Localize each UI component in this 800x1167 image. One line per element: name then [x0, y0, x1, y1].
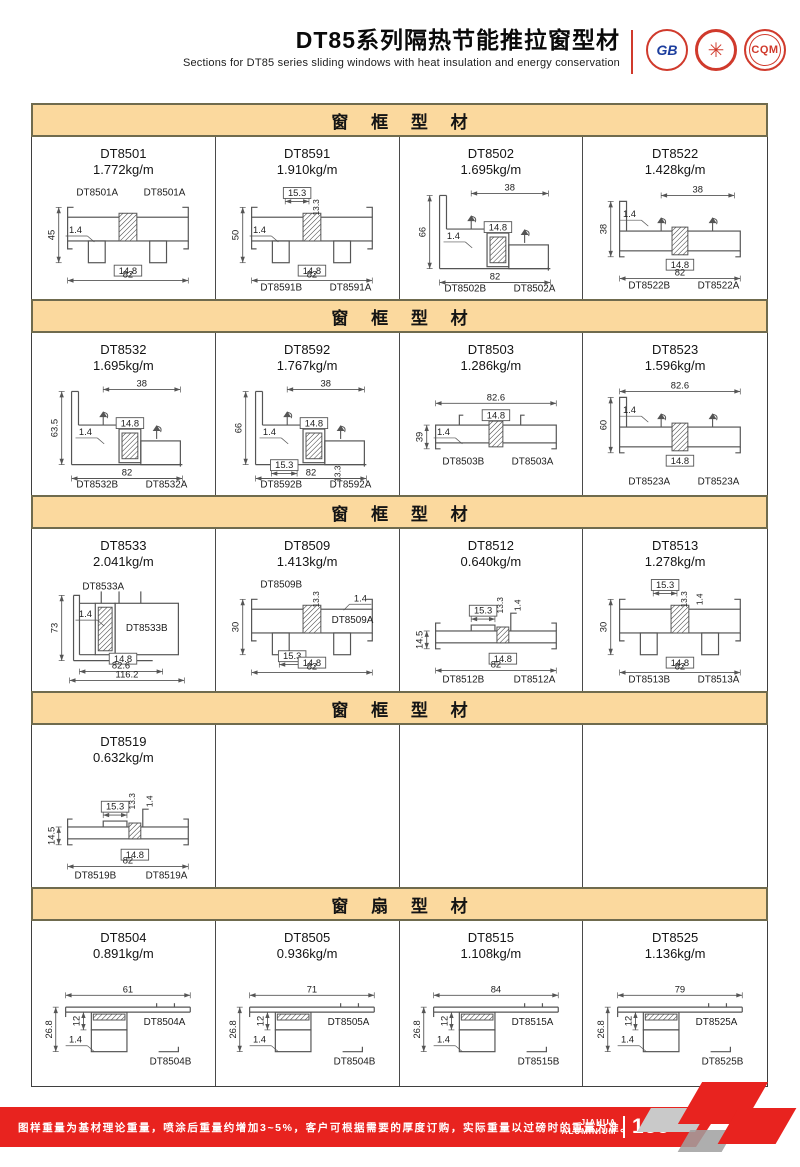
svg-text:50: 50: [230, 229, 241, 239]
profile-cell-dt8515: DT85151.108kg/m841226.81.4DT8515ADT8515B: [400, 921, 584, 1086]
svg-text:DT8532A: DT8532A: [146, 479, 188, 489]
cqm-certification-logo-icon: CQM: [744, 29, 786, 71]
svg-text:13.3: 13.3: [679, 590, 689, 607]
svg-text:1.4: 1.4: [263, 425, 276, 436]
svg-text:1.4: 1.4: [79, 608, 92, 619]
svg-text:26.8: 26.8: [43, 1020, 54, 1038]
profile-cell-dt8504: DT85040.891kg/m611226.81.4DT8504ADT8504B: [32, 921, 216, 1086]
svg-text:DT8519B: DT8519B: [75, 870, 117, 881]
svg-text:14.5: 14.5: [414, 630, 425, 648]
footer-band: 图样重量为基材理论重量，喷涂后重量约增加3~5%，客户可根据需要的厚度订购，实际…: [0, 1107, 722, 1147]
profile-section-drawing: 1.47314.882.6116.2DT8533ADT8533B: [32, 573, 214, 685]
svg-text:DT8523A: DT8523A: [629, 476, 671, 487]
profile-weight: 1.108kg/m: [461, 946, 522, 962]
svg-text:63.5: 63.5: [49, 418, 60, 436]
profile-cell-dt8512: DT85120.640kg/m15.313.31.414.514.882DT85…: [400, 529, 584, 691]
profile-weight: 1.695kg/m: [93, 358, 154, 374]
svg-text:DT8591B: DT8591B: [261, 282, 303, 293]
profile-code: DT8513: [652, 538, 698, 554]
profile-section-drawing: 3863.51.414.882DT8532BDT8532A: [32, 377, 214, 489]
svg-text:DT8591A: DT8591A: [330, 282, 372, 293]
svg-text:14.8: 14.8: [489, 221, 507, 232]
svg-text:1.4: 1.4: [69, 224, 82, 235]
svg-text:60: 60: [598, 419, 609, 429]
svg-text:71: 71: [307, 983, 317, 994]
profile-weight: 1.413kg/m: [277, 554, 338, 570]
profile-weight: 1.695kg/m: [461, 162, 522, 178]
gb-certification-logo-icon: GB: [646, 29, 688, 71]
svg-text:26.8: 26.8: [227, 1020, 238, 1038]
profile-code: DT8532: [100, 342, 146, 358]
profile-section-drawing: 841226.81.4DT8515ADT8515B: [400, 965, 582, 1077]
svg-text:DT8503B: DT8503B: [442, 456, 484, 467]
svg-text:DT8513A: DT8513A: [698, 674, 740, 685]
section-title: 窗 框 型 材: [322, 696, 476, 721]
profile-row-5: DT85040.891kg/m611226.81.4DT8504ADT8504B…: [31, 921, 768, 1087]
profile-section-drawing: 611226.81.4DT8504ADT8504B: [32, 965, 214, 1077]
svg-text:1.4: 1.4: [623, 208, 636, 219]
brand-divider: [623, 1116, 625, 1138]
svg-text:DT8533B: DT8533B: [126, 622, 168, 633]
svg-text:13.3: 13.3: [127, 792, 137, 809]
svg-text:DT8532B: DT8532B: [77, 479, 119, 489]
empty-cell: [216, 725, 400, 887]
profile-code: DT8519: [100, 734, 146, 750]
profile-section-drawing: 15.313.31.414.514.882DT8519BDT8519A: [32, 769, 214, 881]
svg-text:DT8519A: DT8519A: [146, 870, 188, 881]
profile-weight: 1.136kg/m: [645, 946, 706, 962]
profile-cell-dt8503: DT85031.286kg/m82.61.414.839DT8503BDT850…: [400, 333, 584, 495]
svg-text:66: 66: [233, 422, 244, 432]
svg-text:82: 82: [123, 268, 133, 279]
svg-text:38: 38: [321, 377, 331, 388]
profile-row-2: DT85321.695kg/m3863.51.414.882DT8532BDT8…: [31, 333, 768, 495]
svg-text:1.4: 1.4: [623, 404, 636, 415]
section-title: 窗 框 型 材: [322, 304, 476, 329]
svg-text:61: 61: [123, 983, 133, 994]
profile-cell-dt8519: DT85190.632kg/m15.313.31.414.514.882DT85…: [32, 725, 216, 887]
profile-cell-dt8532: DT85321.695kg/m3863.51.414.882DT8532BDT8…: [32, 333, 216, 495]
svg-text:1.4: 1.4: [621, 1033, 634, 1044]
seal-logo-glyph: ✳: [708, 38, 725, 63]
svg-text:12: 12: [255, 1015, 266, 1025]
catalog-page: DT85系列隔热节能推拉窗型材 Sections for DT85 series…: [0, 0, 800, 1167]
svg-text:DT8509A: DT8509A: [332, 615, 374, 626]
section-title: 窗 框 型 材: [322, 500, 476, 525]
profile-section-drawing: 791226.81.4DT8525ADT8525B: [584, 965, 766, 1077]
svg-text:1.4: 1.4: [437, 425, 450, 436]
svg-text:38: 38: [598, 223, 609, 233]
empty-cell: [583, 725, 767, 887]
svg-text:38: 38: [504, 181, 514, 192]
svg-text:13.3: 13.3: [495, 596, 505, 613]
profile-cell-dt8505: DT85050.936kg/m711226.81.4DT8505ADT8504B: [216, 921, 400, 1086]
profile-section-drawing: 82.61.46014.8DT8523ADT8523A: [584, 377, 766, 489]
svg-text:82: 82: [675, 266, 685, 277]
profile-code: DT8503: [468, 342, 514, 358]
profile-code: DT8504: [100, 930, 146, 946]
svg-text:82: 82: [307, 660, 317, 671]
svg-text:DT8592A: DT8592A: [330, 479, 372, 489]
section-title: 窗 框 型 材: [322, 108, 476, 133]
profile-weight: 1.772kg/m: [93, 162, 154, 178]
svg-text:12: 12: [71, 1015, 82, 1025]
profile-code: DT8523: [652, 342, 698, 358]
svg-text:15.3: 15.3: [106, 800, 124, 811]
svg-text:84: 84: [491, 983, 501, 994]
svg-text:13.3: 13.3: [311, 198, 321, 215]
section-band-3: 窗 框 型 材: [31, 495, 768, 529]
profile-code: DT8509: [284, 538, 330, 554]
profile-catalog: 窗 框 型 材DT85011.772kg/m451.414.882DT8501A…: [31, 103, 768, 1087]
profile-section-drawing: 451.414.882DT8501ADT8501A: [32, 181, 214, 293]
profile-code: DT8525: [652, 930, 698, 946]
svg-text:DT8522B: DT8522B: [629, 280, 671, 291]
svg-text:DT8512B: DT8512B: [442, 674, 484, 685]
section-band-4: 窗 框 型 材: [31, 691, 768, 725]
profile-weight: 0.936kg/m: [277, 946, 338, 962]
profile-cell-dt8523: DT85231.596kg/m82.61.46014.8DT8523ADT852…: [583, 333, 767, 495]
svg-text:82: 82: [123, 854, 133, 865]
svg-text:66: 66: [417, 226, 428, 236]
brand-line1: JIAHUA: [562, 1118, 617, 1127]
profile-weight: 0.891kg/m: [93, 946, 154, 962]
svg-text:1.4: 1.4: [145, 795, 155, 807]
profile-weight: 1.428kg/m: [645, 162, 706, 178]
page-title: DT85系列隔热节能推拉窗型材: [0, 26, 620, 55]
profile-code: DT8501: [100, 146, 146, 162]
profile-cell-dt8592: DT85921.767kg/m38661.414.815.313.382DT85…: [216, 333, 400, 495]
svg-text:DT8509B: DT8509B: [261, 579, 303, 590]
svg-text:82: 82: [491, 658, 501, 669]
svg-text:DT8525B: DT8525B: [702, 1056, 744, 1067]
svg-text:DT8504A: DT8504A: [144, 1016, 186, 1027]
profile-section-drawing: 15.313.31.414.514.882DT8512BDT8512A: [400, 573, 582, 685]
star-seal-logo-icon: ✳: [695, 29, 737, 71]
svg-text:39: 39: [414, 431, 425, 441]
profile-cell-dt8533: DT85332.041kg/m1.47314.882.6116.2DT8533A…: [32, 529, 216, 691]
profile-section-drawing: 711226.81.4DT8505ADT8504B: [216, 965, 398, 1077]
svg-text:DT8505A: DT8505A: [328, 1016, 370, 1027]
svg-text:82: 82: [122, 466, 132, 477]
svg-text:DT8523A: DT8523A: [698, 476, 740, 487]
svg-text:DT8504B: DT8504B: [150, 1056, 192, 1067]
page-subtitle: Sections for DT85 series sliding windows…: [0, 57, 620, 69]
header-red-divider: [631, 30, 633, 74]
svg-text:82: 82: [306, 466, 316, 477]
svg-text:DT8501A: DT8501A: [77, 187, 119, 198]
svg-text:13.3: 13.3: [311, 590, 321, 607]
cqm-logo-text: CQM: [751, 44, 778, 56]
svg-text:1.4: 1.4: [79, 425, 92, 436]
profile-weight: 0.632kg/m: [93, 750, 154, 766]
svg-text:DT8503A: DT8503A: [512, 456, 554, 467]
svg-text:15.3: 15.3: [275, 459, 293, 470]
svg-text:1.4: 1.4: [447, 229, 460, 240]
section-band-5: 窗 扇 型 材: [31, 887, 768, 921]
svg-text:12: 12: [438, 1015, 449, 1025]
profile-row-3: DT85332.041kg/m1.47314.882.6116.2DT8533A…: [31, 529, 768, 691]
profile-section-drawing: 15.313.31.43014.882DT8513BDT8513A: [584, 573, 766, 685]
svg-text:DT8502A: DT8502A: [514, 283, 556, 293]
profile-code: DT8505: [284, 930, 330, 946]
svg-text:14.8: 14.8: [121, 417, 139, 428]
profile-code: DT8512: [468, 538, 514, 554]
page-header: DT85系列隔热节能推拉窗型材 Sections for DT85 series…: [0, 26, 620, 69]
svg-text:DT8501A: DT8501A: [144, 187, 186, 198]
footer-parallelogram-art: [638, 1080, 800, 1166]
svg-text:1.4: 1.4: [69, 1033, 82, 1044]
certification-logos: GB ✳ CQM: [646, 29, 786, 71]
svg-text:1.4: 1.4: [513, 599, 523, 611]
gb-logo-text: GB: [657, 42, 678, 58]
profile-section-drawing: 38661.414.882DT8502BDT8502A: [400, 181, 582, 293]
profile-cell-dt8509: DT85091.413kg/m13.31.43015.314.882DT8509…: [216, 529, 400, 691]
svg-text:DT8522A: DT8522A: [698, 280, 740, 291]
svg-text:14.8: 14.8: [487, 409, 505, 420]
svg-text:DT8504B: DT8504B: [334, 1056, 376, 1067]
svg-text:DT8533A: DT8533A: [83, 581, 125, 592]
svg-text:DT8525A: DT8525A: [696, 1016, 738, 1027]
svg-text:38: 38: [693, 183, 703, 194]
svg-text:15.3: 15.3: [656, 578, 674, 589]
profile-code: DT8515: [468, 930, 514, 946]
profile-section-drawing: 82.61.414.839DT8503BDT8503A: [400, 377, 582, 489]
svg-text:1.4: 1.4: [437, 1033, 450, 1044]
profile-section-drawing: 15.313.3501.414.882DT8591BDT8591A: [216, 181, 398, 293]
profile-cell-dt8513: DT85131.278kg/m15.313.31.43014.882DT8513…: [583, 529, 767, 691]
svg-text:14.8: 14.8: [305, 417, 323, 428]
svg-text:DT8502B: DT8502B: [444, 283, 486, 293]
profile-weight: 1.767kg/m: [277, 358, 338, 374]
profile-weight: 0.640kg/m: [461, 554, 522, 570]
footer-note: 图样重量为基材理论重量，喷涂后重量约增加3~5%，客户可根据需要的厚度订购，实际…: [18, 1107, 632, 1147]
svg-text:DT8515A: DT8515A: [512, 1016, 554, 1027]
profile-code: DT8592: [284, 342, 330, 358]
profile-code: DT8533: [100, 538, 146, 554]
svg-text:DT8513B: DT8513B: [629, 674, 671, 685]
brand-line2: ALUMINIUM: [562, 1127, 617, 1136]
profile-cell-dt8525: DT85251.136kg/m791226.81.4DT8525ADT8525B: [583, 921, 767, 1086]
profile-weight: 2.041kg/m: [93, 554, 154, 570]
profile-weight: 1.910kg/m: [277, 162, 338, 178]
profile-weight: 1.596kg/m: [645, 358, 706, 374]
svg-text:38: 38: [137, 377, 147, 388]
svg-text:79: 79: [675, 983, 685, 994]
svg-text:82.6: 82.6: [671, 379, 689, 390]
svg-text:14.5: 14.5: [46, 826, 57, 844]
svg-text:26.8: 26.8: [595, 1020, 606, 1038]
profile-code: DT8502: [468, 146, 514, 162]
brand-name: JIAHUA ALUMINIUM: [562, 1118, 617, 1136]
svg-text:73: 73: [49, 622, 60, 632]
profile-row-4: DT85190.632kg/m15.313.31.414.514.882DT85…: [31, 725, 768, 887]
section-band-1: 窗 框 型 材: [31, 103, 768, 137]
profile-cell-dt8502: DT85021.695kg/m38661.414.882DT8502BDT850…: [400, 137, 584, 299]
profile-row-1: DT85011.772kg/m451.414.882DT8501ADT8501A…: [31, 137, 768, 299]
profile-code: DT8522: [652, 146, 698, 162]
svg-text:DT8592B: DT8592B: [261, 479, 303, 489]
profile-section-drawing: 381.43814.882DT8522BDT8522A: [584, 181, 766, 293]
svg-text:26.8: 26.8: [411, 1020, 422, 1038]
svg-text:30: 30: [598, 621, 609, 631]
svg-text:45: 45: [46, 229, 57, 239]
profile-cell-dt8522: DT85221.428kg/m381.43814.882DT8522BDT852…: [583, 137, 767, 299]
svg-text:30: 30: [230, 621, 241, 631]
profile-section-drawing: 13.31.43015.314.882DT8509BDT8509A: [216, 573, 398, 685]
svg-text:1.4: 1.4: [253, 1033, 266, 1044]
svg-text:1.4: 1.4: [253, 224, 266, 235]
svg-text:1.4: 1.4: [695, 593, 705, 605]
profile-cell-dt8501: DT85011.772kg/m451.414.882DT8501ADT8501A: [32, 137, 216, 299]
svg-text:15.3: 15.3: [474, 604, 492, 615]
svg-text:1.4: 1.4: [354, 592, 367, 603]
profile-section-drawing: 38661.414.815.313.382DT8592BDT8592A: [216, 377, 398, 489]
section-band-2: 窗 框 型 材: [31, 299, 768, 333]
svg-text:15.3: 15.3: [288, 186, 306, 197]
svg-text:DT8512A: DT8512A: [514, 674, 556, 685]
svg-text:82: 82: [675, 660, 685, 671]
profile-weight: 1.278kg/m: [645, 554, 706, 570]
svg-text:82.6: 82.6: [487, 391, 505, 402]
svg-text:DT8515B: DT8515B: [517, 1056, 559, 1067]
svg-text:116.2: 116.2: [116, 668, 139, 679]
svg-text:82: 82: [490, 270, 500, 281]
empty-cell: [400, 725, 584, 887]
profile-cell-dt8591: DT85911.910kg/m15.313.3501.414.882DT8591…: [216, 137, 400, 299]
svg-text:12: 12: [623, 1015, 634, 1025]
profile-weight: 1.286kg/m: [461, 358, 522, 374]
profile-code: DT8591: [284, 146, 330, 162]
svg-text:82: 82: [307, 268, 317, 279]
section-title: 窗 扇 型 材: [322, 892, 476, 917]
svg-text:14.8: 14.8: [671, 455, 689, 466]
